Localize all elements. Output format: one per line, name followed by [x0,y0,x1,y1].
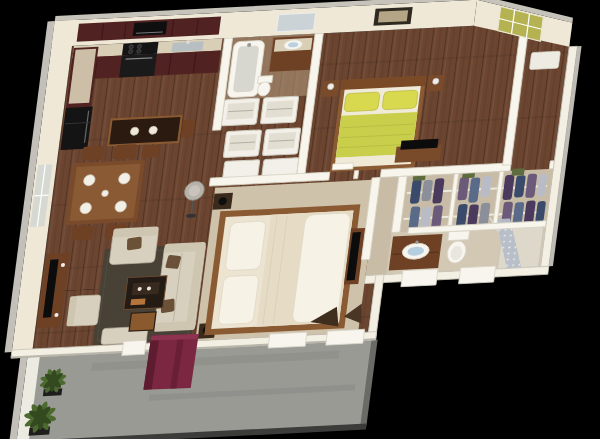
bar-stool [141,145,159,158]
dining-chair [115,144,137,159]
window-sill [122,340,146,355]
window-sill [459,266,496,284]
vanity-main [269,36,315,72]
bathroom-mirror [276,13,315,32]
vanity-ensuite [389,234,443,270]
side-table [129,312,156,331]
window-sill [401,269,438,287]
dining-chair [82,146,104,161]
room-master-bedroom [196,185,380,338]
cooktop [122,42,159,56]
window-sill [326,329,365,345]
towel-on-railing [143,334,198,390]
window-sill [268,332,307,348]
room-entry [529,51,560,69]
dining-chair [71,226,93,241]
entry-mat [529,51,560,69]
floorplan-render [0,0,600,439]
armchair [109,226,159,264]
microwave [133,21,168,36]
coffee-table [124,276,167,310]
bar-stool [181,119,196,138]
kitchen-island [108,116,181,146]
oven [119,54,157,78]
wall-picture [373,7,412,26]
render-canvas [0,0,600,439]
open-door-leaf [332,163,353,170]
